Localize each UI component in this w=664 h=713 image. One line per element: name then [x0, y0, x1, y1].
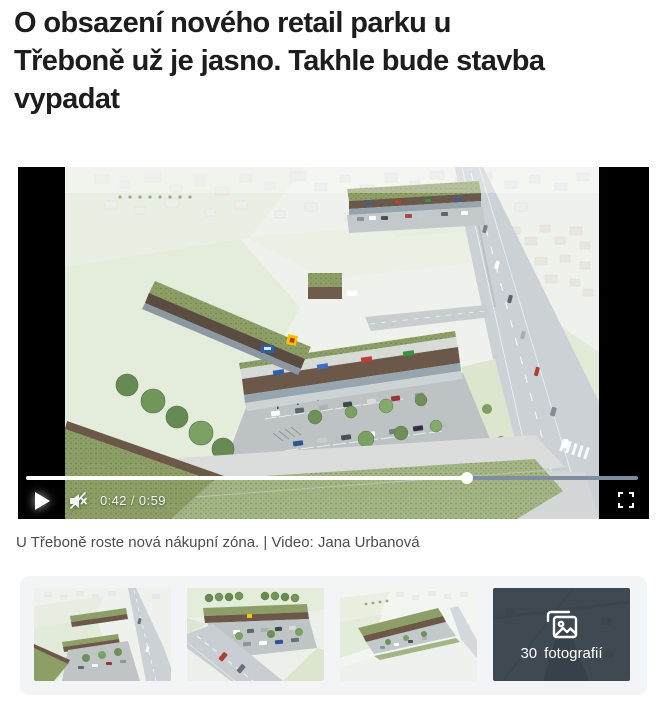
muted-speaker-icon: [68, 491, 88, 511]
play-button[interactable]: [28, 488, 56, 514]
thumbnail-2-image: [187, 588, 324, 681]
photo-count: 30: [520, 645, 537, 662]
video-player[interactable]: 0:42/0:59: [18, 167, 649, 519]
title-line-2: Třeboně už je jasno. Takhle bude stavba: [14, 42, 658, 80]
gallery-thumbnail-2[interactable]: [187, 588, 324, 681]
thumbnail-3-image: [340, 588, 477, 681]
video-progress-played: [26, 476, 467, 480]
article-title: O obsazení nového retail parku u Třeboně…: [14, 4, 658, 118]
video-frame[interactable]: [65, 167, 599, 519]
fullscreen-icon: [618, 492, 634, 508]
time-separator: /: [131, 493, 135, 508]
gallery-row: 30fotografií: [34, 588, 630, 681]
play-icon: [34, 492, 50, 510]
title-line-1: O obsazení nového retail parku u: [14, 4, 658, 42]
video-time-display: 0:42/0:59: [100, 493, 166, 508]
title-line-3: vypadat: [14, 80, 658, 118]
photo-count-word: fotografií: [544, 645, 602, 662]
article-page: O obsazení nového retail parku u Třeboně…: [0, 0, 664, 713]
fullscreen-button[interactable]: [616, 490, 636, 510]
thumbnail-1-image: [34, 588, 171, 681]
gallery-thumbnail-1[interactable]: [34, 588, 171, 681]
photo-gallery: 30fotografií: [20, 576, 647, 695]
video-caption: U Třeboně roste nová nákupní zóna. | Vid…: [16, 533, 648, 553]
duration: 0:59: [139, 493, 166, 508]
video-progress-track[interactable]: [26, 476, 638, 480]
gallery-thumbnail-3[interactable]: [340, 588, 477, 681]
mute-button[interactable]: [66, 489, 90, 513]
photo-stack-icon: [545, 610, 579, 640]
video-progress-handle[interactable]: [461, 472, 473, 484]
more-photos-label: 30fotografií: [520, 645, 602, 662]
open-gallery-button[interactable]: 30fotografií: [493, 588, 630, 681]
current-time: 0:42: [100, 493, 127, 508]
